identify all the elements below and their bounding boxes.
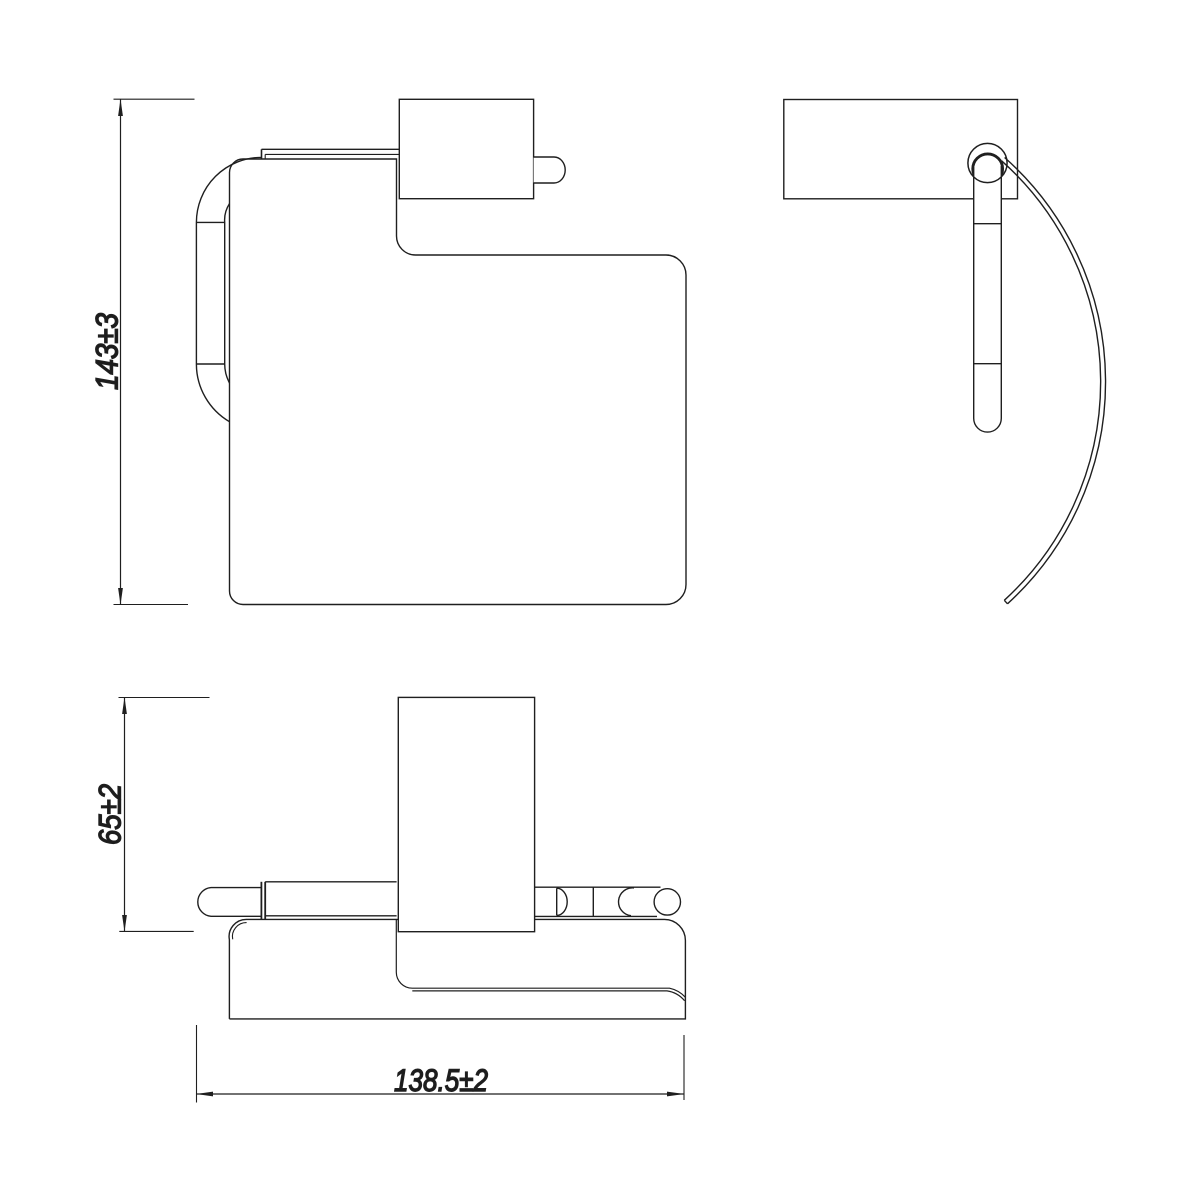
svg-text:138.5±2: 138.5±2 bbox=[394, 1062, 488, 1098]
svg-text:65±2: 65±2 bbox=[92, 784, 128, 845]
svg-text:143±3: 143±3 bbox=[89, 313, 125, 390]
